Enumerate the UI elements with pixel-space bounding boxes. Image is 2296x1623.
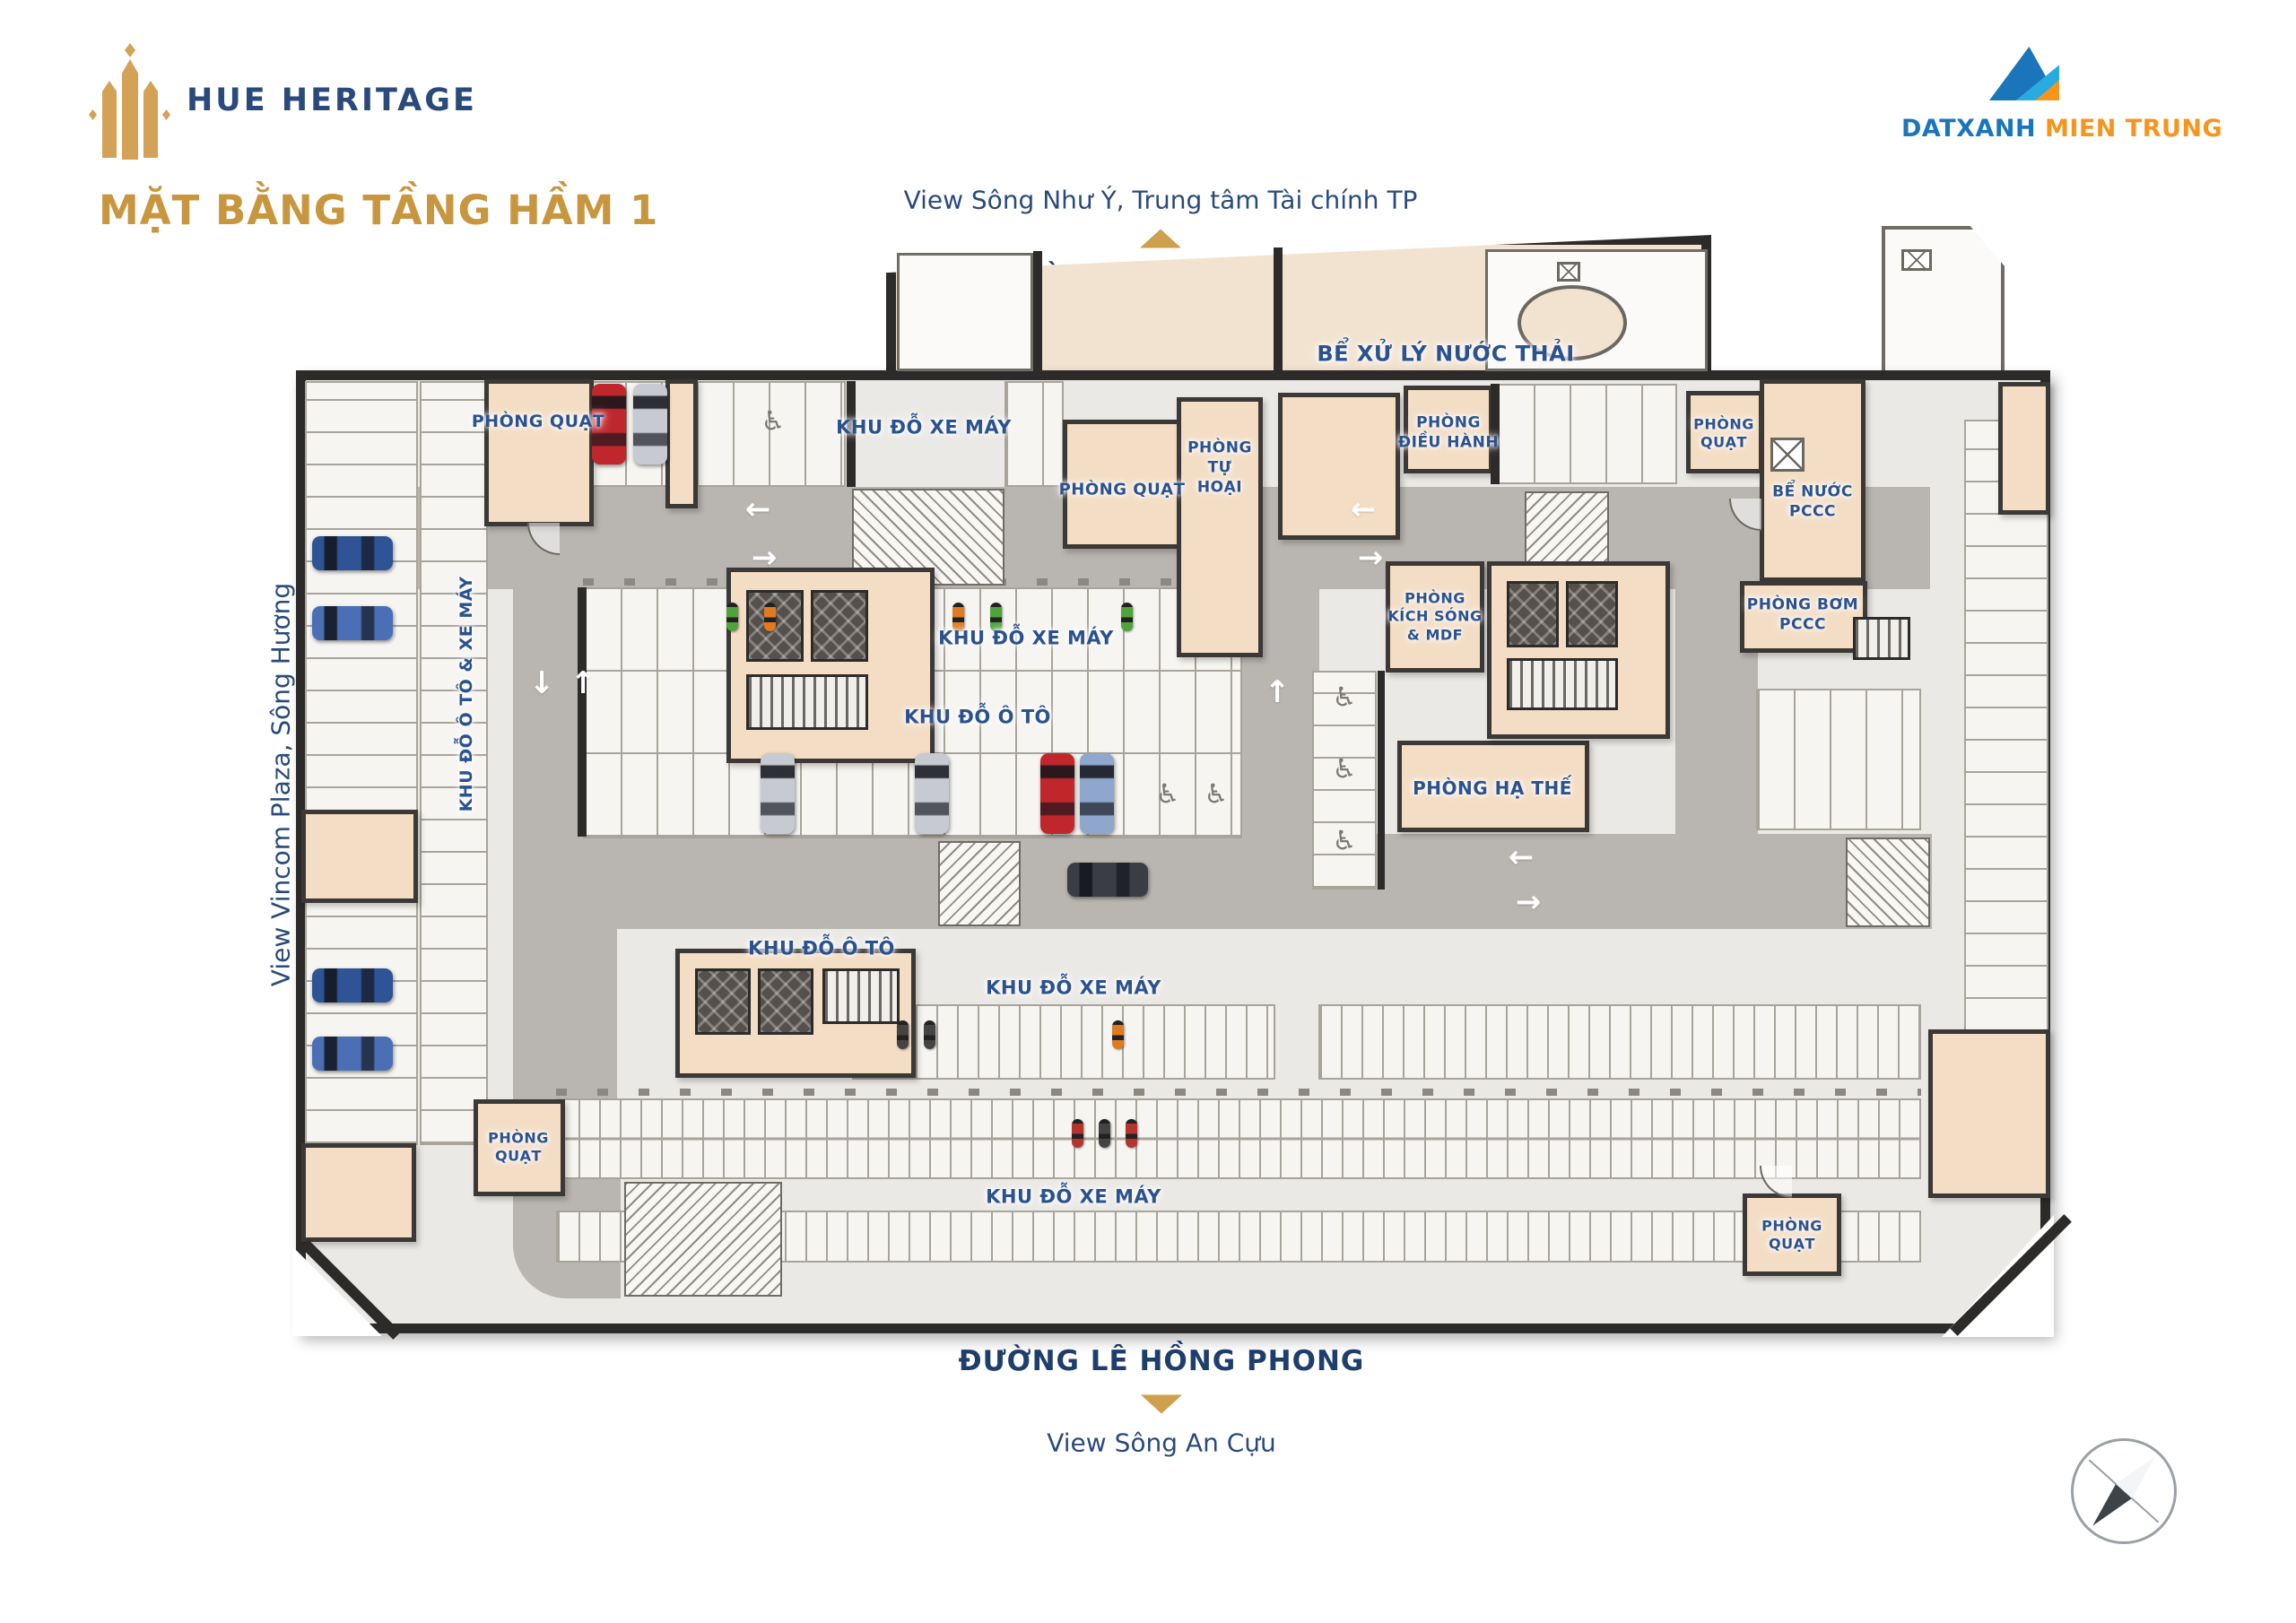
emblem-bar — [102, 81, 117, 158]
room-label-be-xu-ly-nuoc-thai: BỂ XỬ LÝ NƯỚC THẢI — [1317, 341, 1574, 369]
room-phong-tu-hoai — [1177, 397, 1263, 657]
room-right-edge — [1928, 1029, 2050, 1198]
car-silver-icon — [915, 753, 949, 834]
car-blue-icon — [312, 606, 393, 640]
room-label-phong-quat-top-left: PHÒNG QUẠT — [472, 411, 604, 432]
car-blue-icon — [312, 968, 393, 1002]
tank-access-hatch — [1770, 438, 1805, 472]
accessible-parking-icon: ♿ — [1333, 682, 1357, 714]
datxanh-text-blue: DATXANH — [1901, 115, 2036, 143]
datxanh-logo-text: DATXANH MIEN TRUNG — [1901, 115, 2222, 143]
view-label-top: View Sông Như Ý, Trung tâm Tài chính TP — [904, 186, 1418, 215]
emblem-bar — [143, 81, 158, 158]
parking-stalls — [1756, 689, 1921, 830]
traffic-arrow-up: ↑ — [570, 665, 596, 701]
zone-label-left-column: KHU ĐỖ Ô TÔ & XE MÁY — [456, 577, 477, 812]
room-label-be-nuoc-pccc: BỂ NƯỚC PCCC — [1772, 482, 1853, 522]
ramp-hatch — [938, 841, 1021, 926]
parking-stalls-left-outer — [305, 381, 418, 1145]
traffic-arrow-left: ← — [745, 491, 771, 527]
fixture — [1901, 249, 1932, 271]
elevator-shaft-icon — [1566, 581, 1618, 647]
datxanh-text-orange: MIEN TRUNG — [2036, 115, 2222, 143]
parking-stalls — [1004, 381, 1064, 487]
car-red-icon — [1040, 753, 1074, 834]
ramp-hatch — [624, 1182, 782, 1297]
accessible-parking-icon: ♿ — [1156, 779, 1180, 811]
room-right-edge — [1998, 382, 2050, 515]
page-title: MẶT BẰNG TẦNG HẦM 1 — [99, 187, 658, 234]
room-unlabeled — [1278, 393, 1400, 540]
moped-dark-icon — [897, 1020, 909, 1049]
zone-label-khu-do-o-to-mid: KHU ĐỖ Ô TÔ — [904, 706, 1051, 730]
floorplan-page: HUE HERITAGE MẶT BẰNG TẦNG HẦM 1 DATXANH… — [0, 0, 2296, 1623]
compass-needle-icon — [2084, 1449, 2162, 1532]
car-blue-icon — [312, 1037, 393, 1071]
direction-triangle-down-icon — [1141, 1395, 1182, 1414]
moped-orange-icon — [764, 603, 776, 631]
car-blue-icon — [312, 536, 393, 570]
room-label-phong-dieu-hanh: PHÒNG ĐIỀU HÀNH — [1398, 413, 1499, 453]
car-dark-icon — [1067, 863, 1148, 897]
wall-divider — [578, 587, 587, 837]
motorbike-stalls — [1318, 1004, 1921, 1080]
direction-triangle-up-icon — [1140, 230, 1181, 248]
traffic-arrow-down: ↓ — [529, 665, 555, 701]
staircase-icon — [746, 674, 868, 730]
room-label-phong-quat-bottom-left: PHÒNG QUẠT — [488, 1130, 549, 1167]
emblem-diamond — [89, 109, 97, 120]
parking-stalls — [1496, 384, 1677, 484]
traffic-arrow-left: ← — [1509, 839, 1535, 875]
zone-label-khu-do-xe-may-top: KHU ĐỖ XE MÁY — [836, 416, 1012, 440]
wall-divider — [1378, 671, 1385, 890]
wall-divider — [1033, 251, 1042, 371]
view-label-bottom: View Sông An Cựu — [1047, 1428, 1276, 1458]
elevator-shaft-icon — [758, 968, 813, 1035]
zone-label-khu-do-xe-may-bottom1: KHU ĐỖ XE MÁY — [986, 976, 1161, 1001]
logo-text: HUE HERITAGE — [187, 82, 477, 118]
plan-top-right-annex — [1882, 226, 2005, 380]
datxanh-logo-icon — [1989, 47, 2059, 100]
accessible-parking-icon: ♿ — [1333, 754, 1357, 785]
moped-green-icon — [726, 603, 738, 631]
traffic-arrow-up: ↑ — [1265, 674, 1291, 710]
street-label-bottom: ĐƯỜNG LÊ HỒNG PHONG — [959, 1345, 1365, 1377]
room-left-edge — [301, 810, 418, 903]
room-label-kich-song-mdf: PHÒNG KÍCH SÓNG & MDF — [1387, 589, 1482, 644]
elevator-shaft-icon — [811, 590, 868, 662]
moped-orange-icon — [1112, 1020, 1124, 1049]
traffic-arrow-left: ← — [1351, 491, 1377, 527]
elevator-shaft-icon — [1507, 581, 1559, 647]
traffic-arrow-right: → — [1358, 540, 1384, 576]
driveway-right-vertical — [1675, 487, 1758, 928]
traffic-arrow-right: → — [752, 540, 778, 576]
parking-stalls-left-inner — [420, 381, 488, 1145]
moped-dark-icon — [1099, 1119, 1110, 1148]
room-label-phong-quat-top-center: PHÒNG QUẠT — [1059, 479, 1186, 499]
zone-label-khu-do-o-to-bottom: KHU ĐỖ Ô TÔ — [748, 937, 895, 961]
accessible-parking-icon: ♿ — [1333, 826, 1357, 857]
staircase-icon — [1853, 617, 1910, 660]
traffic-arrow-right: → — [1516, 884, 1542, 920]
room-left-edge — [301, 1143, 416, 1242]
moped-red-icon — [1126, 1119, 1137, 1148]
car-silver-icon — [761, 753, 795, 834]
wall-divider — [1274, 247, 1283, 371]
room-label-phong-quat-bottom-right: PHÒNG QUẠT — [1761, 1218, 1822, 1254]
zone-label-khu-do-xe-may-mid: KHU ĐỖ XE MÁY — [938, 627, 1114, 651]
elevator-shaft-icon — [695, 968, 751, 1035]
room-label-phong-ha-the: PHÒNG HẠ THẾ — [1413, 777, 1572, 801]
moped-dark-icon — [924, 1020, 935, 1049]
room-label-phong-quat-top-right: PHÒNG QUẠT — [1693, 416, 1754, 453]
staircase-icon — [822, 968, 900, 1024]
hue-heritage-emblem-icon — [100, 54, 172, 170]
view-label-left: View Vincom Plaza, Sông Hương — [266, 583, 296, 986]
zone-label-khu-do-xe-may-bottom2: KHU ĐỖ XE MÁY — [986, 1185, 1161, 1210]
accessible-parking-icon: ♿ — [1205, 779, 1229, 811]
moped-green-icon — [1121, 603, 1133, 631]
room-small — [665, 379, 698, 508]
room-phong-quat-top-left — [484, 379, 594, 526]
car-silver-icon — [633, 384, 667, 464]
room-be-nuoc-pccc — [1760, 379, 1865, 582]
room-label-phong-bom-pccc: PHÒNG BƠM PCCC — [1747, 595, 1858, 635]
emblem-diamond — [125, 43, 135, 57]
compass-icon — [2071, 1438, 2177, 1544]
car-blue-icon — [1080, 753, 1114, 834]
emblem-diamond — [162, 109, 170, 120]
stall-marker-row — [556, 1089, 1921, 1096]
room-label-phong-tu-hoai: PHÒNG TỰ HOẠI — [1187, 438, 1252, 497]
plant-room — [897, 253, 1033, 371]
fixture — [1557, 262, 1580, 282]
motorbike-stalls-double-row — [556, 1098, 1921, 1179]
accessible-parking-icon: ♿ — [761, 406, 786, 438]
ramp-hatch — [1846, 838, 1930, 927]
staircase-icon — [1507, 658, 1618, 710]
moped-red-icon — [1072, 1119, 1083, 1148]
parking-stalls — [587, 381, 846, 487]
emblem-bar — [122, 59, 138, 160]
